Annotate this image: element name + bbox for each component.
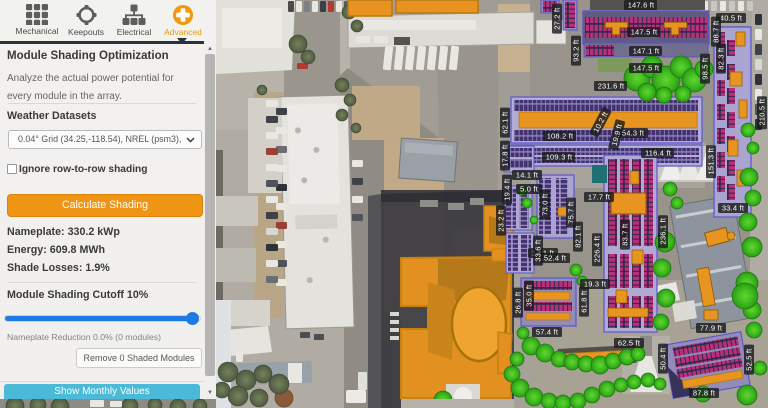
svg-text:17.8 ft: 17.8 ft xyxy=(501,144,510,167)
svg-text:98.5 ft: 98.5 ft xyxy=(701,57,710,80)
svg-text:54.3 ft: 54.3 ft xyxy=(622,129,645,138)
svg-text:87.8 ft: 87.8 ft xyxy=(693,389,716,398)
svg-text:236.1 ft: 236.1 ft xyxy=(659,217,668,244)
svg-text:147.1 ft: 147.1 ft xyxy=(633,47,660,56)
svg-text:33.4 ft: 33.4 ft xyxy=(722,204,745,213)
svg-text:108.2 ft: 108.2 ft xyxy=(547,132,574,141)
svg-text:210.5 ft: 210.5 ft xyxy=(758,98,767,125)
svg-text:82.3 ft: 82.3 ft xyxy=(717,47,726,70)
svg-text:116.4 ft: 116.4 ft xyxy=(645,149,672,158)
svg-text:62.5 ft: 62.5 ft xyxy=(618,339,641,348)
svg-text:147.5 ft: 147.5 ft xyxy=(631,28,658,37)
svg-text:147.5 ft: 147.5 ft xyxy=(633,64,660,73)
svg-text:57.4 ft: 57.4 ft xyxy=(536,328,559,337)
svg-text:109.3 ft: 109.3 ft xyxy=(546,153,573,162)
svg-text:19.4 ft: 19.4 ft xyxy=(503,178,512,201)
svg-text:50.4 ft: 50.4 ft xyxy=(659,347,668,370)
svg-text:93.2 ft: 93.2 ft xyxy=(572,39,581,62)
svg-text:61.8 ft: 61.8 ft xyxy=(580,290,589,313)
svg-text:40.5 ft: 40.5 ft xyxy=(720,14,743,23)
svg-text:226.4 ft: 226.4 ft xyxy=(593,235,602,262)
svg-text:14.1 ft: 14.1 ft xyxy=(516,171,539,180)
svg-text:83.7 ft: 83.7 ft xyxy=(621,223,630,246)
svg-text:27.2 ft: 27.2 ft xyxy=(553,7,562,30)
svg-text:62.1 ft: 62.1 ft xyxy=(501,111,510,134)
svg-text:17.7 ft: 17.7 ft xyxy=(588,193,611,202)
svg-text:151.3 ft: 151.3 ft xyxy=(707,147,716,174)
svg-text:35.0 ft: 35.0 ft xyxy=(525,284,534,307)
svg-text:5.0 ft: 5.0 ft xyxy=(520,185,539,194)
svg-text:26.8 ft: 26.8 ft xyxy=(514,291,523,314)
svg-text:77.9 ft: 77.9 ft xyxy=(700,324,723,333)
svg-text:75.7 ft: 75.7 ft xyxy=(567,201,576,224)
svg-text:33.6 ft: 33.6 ft xyxy=(534,239,543,262)
svg-text:231.6 ft: 231.6 ft xyxy=(598,82,625,91)
svg-text:88.7 ft: 88.7 ft xyxy=(712,20,721,43)
svg-text:52.4 ft: 52.4 ft xyxy=(544,254,567,263)
svg-text:73.0 ft: 73.0 ft xyxy=(541,193,550,216)
svg-text:147.6 ft: 147.6 ft xyxy=(628,1,655,10)
svg-text:82.1 ft: 82.1 ft xyxy=(574,225,583,248)
svg-text:23.2 ft: 23.2 ft xyxy=(497,209,506,232)
svg-text:52.5 ft: 52.5 ft xyxy=(745,348,754,371)
